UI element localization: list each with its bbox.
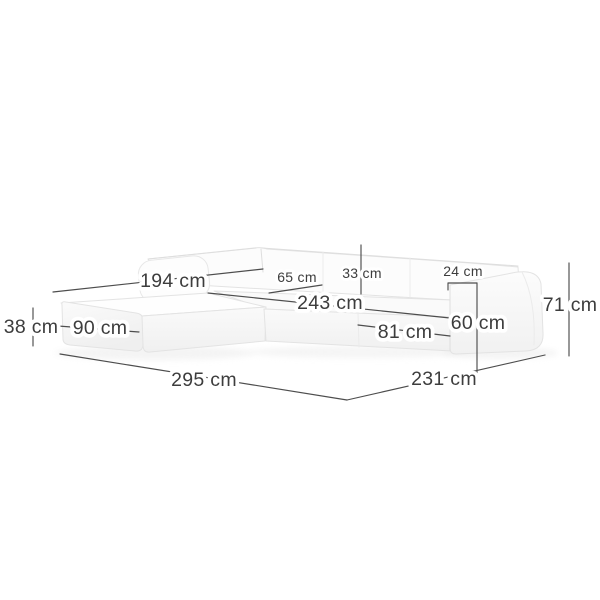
dim-label-chaise-depth: 194 cm (140, 270, 206, 292)
dim-label-total-height: 71 cm (543, 294, 598, 316)
dim-label-armrest-height: 60 cm (451, 312, 506, 334)
dim-label-corner-seat-depth: 65 cm (277, 269, 317, 285)
dim-label-seat-height: 38 cm (4, 316, 59, 338)
dim-label-chaise-width: 90 cm (73, 317, 128, 339)
dim-label-total-width: 295 cm (171, 369, 237, 391)
dim-label-backrest-height: 33 cm (342, 265, 382, 281)
dim-label-seat-width: 81 cm (378, 321, 433, 343)
diagram-canvas: 194 cm 65 cm 33 cm 24 cm 243 cm 90 cm 38… (0, 0, 600, 600)
sofa-dimension-diagram: 194 cm 65 cm 33 cm 24 cm 243 cm 90 cm 38… (0, 0, 600, 600)
dim-label-armrest-width: 24 cm (443, 263, 483, 279)
dim-label-inner-width: 243 cm (297, 292, 363, 314)
dim-label-total-depth: 231 cm (411, 368, 477, 390)
